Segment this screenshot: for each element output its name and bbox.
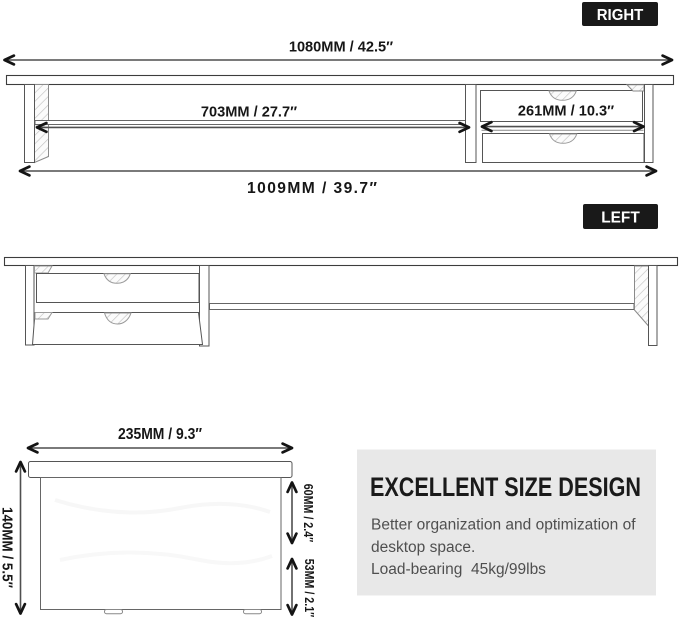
svg-text:261MM / 10.3″: 261MM / 10.3″ bbox=[518, 104, 614, 120]
svg-text:53MM / 2.1″: 53MM / 2.1″ bbox=[302, 559, 317, 618]
svg-text:desktop space.: desktop space. bbox=[371, 539, 475, 556]
svg-text:235MM / 9.3″: 235MM / 9.3″ bbox=[118, 426, 203, 443]
svg-text:LEFT: LEFT bbox=[601, 210, 640, 227]
svg-text:140MM / 5.5″: 140MM / 5.5″ bbox=[0, 507, 16, 588]
svg-text:1080MM / 42.5″: 1080MM / 42.5″ bbox=[289, 40, 393, 56]
svg-text:EXCELLENT SIZE DESIGN: EXCELLENT SIZE DESIGN bbox=[370, 472, 641, 502]
svg-text:Load-bearing 45kg/99lbs: Load-bearing 45kg/99lbs bbox=[371, 561, 546, 578]
svg-text:RIGHT: RIGHT bbox=[597, 7, 644, 24]
svg-text:Better organization and optimi: Better organization and optimization of bbox=[371, 517, 636, 534]
svg-text:1009MM / 39.7″: 1009MM / 39.7″ bbox=[247, 180, 378, 197]
svg-text:60MM / 2.4″: 60MM / 2.4″ bbox=[301, 484, 316, 543]
svg-text:703MM / 27.7″: 703MM / 27.7″ bbox=[201, 105, 297, 121]
